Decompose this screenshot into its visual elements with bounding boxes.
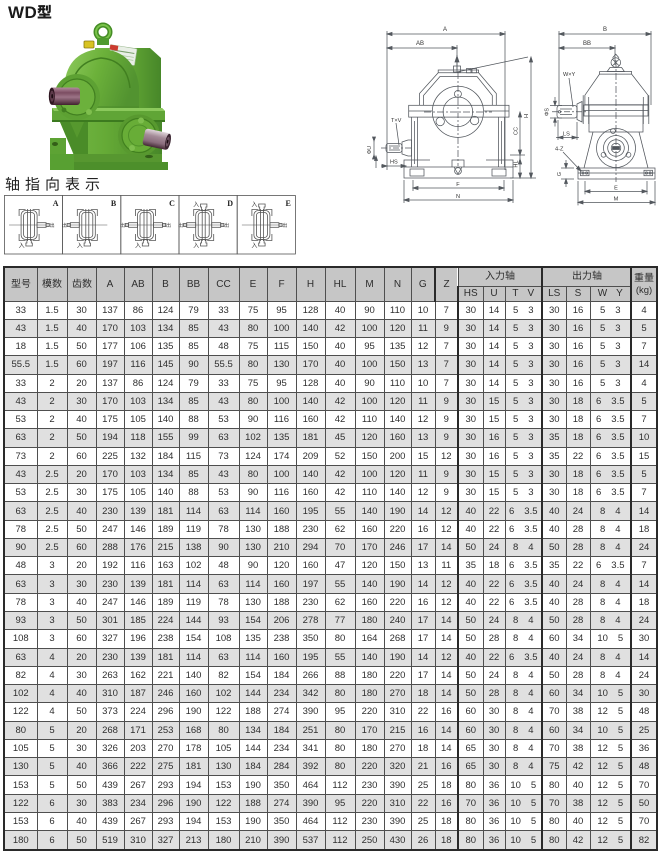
svg-text:F: F [456, 182, 460, 188]
svg-text:G: G [557, 172, 563, 176]
svg-text:M: M [614, 196, 619, 202]
svg-text:4-Z: 4-Z [555, 147, 564, 153]
svg-text:E: E [286, 199, 291, 208]
svg-text:B: B [111, 199, 117, 208]
svg-text:BB: BB [583, 41, 591, 47]
svg-text:D: D [227, 199, 233, 208]
svg-text:CC: CC [514, 127, 520, 135]
svg-text:H: H [524, 114, 530, 118]
svg-text:N: N [456, 194, 460, 200]
svg-text:ΦS: ΦS [545, 108, 551, 116]
svg-text:E: E [614, 185, 618, 191]
svg-text:ΦU: ΦU [367, 146, 373, 154]
svg-text:B: B [603, 27, 607, 33]
svg-text:HS: HS [390, 160, 398, 166]
svg-text:C: C [169, 199, 175, 208]
svg-text:A: A [53, 199, 59, 208]
svg-text:A: A [443, 27, 447, 33]
svg-text:LS: LS [563, 132, 570, 138]
svg-text:HL: HL [514, 160, 520, 167]
svg-text:W×Y: W×Y [563, 72, 576, 78]
svg-text:AB: AB [416, 41, 424, 47]
